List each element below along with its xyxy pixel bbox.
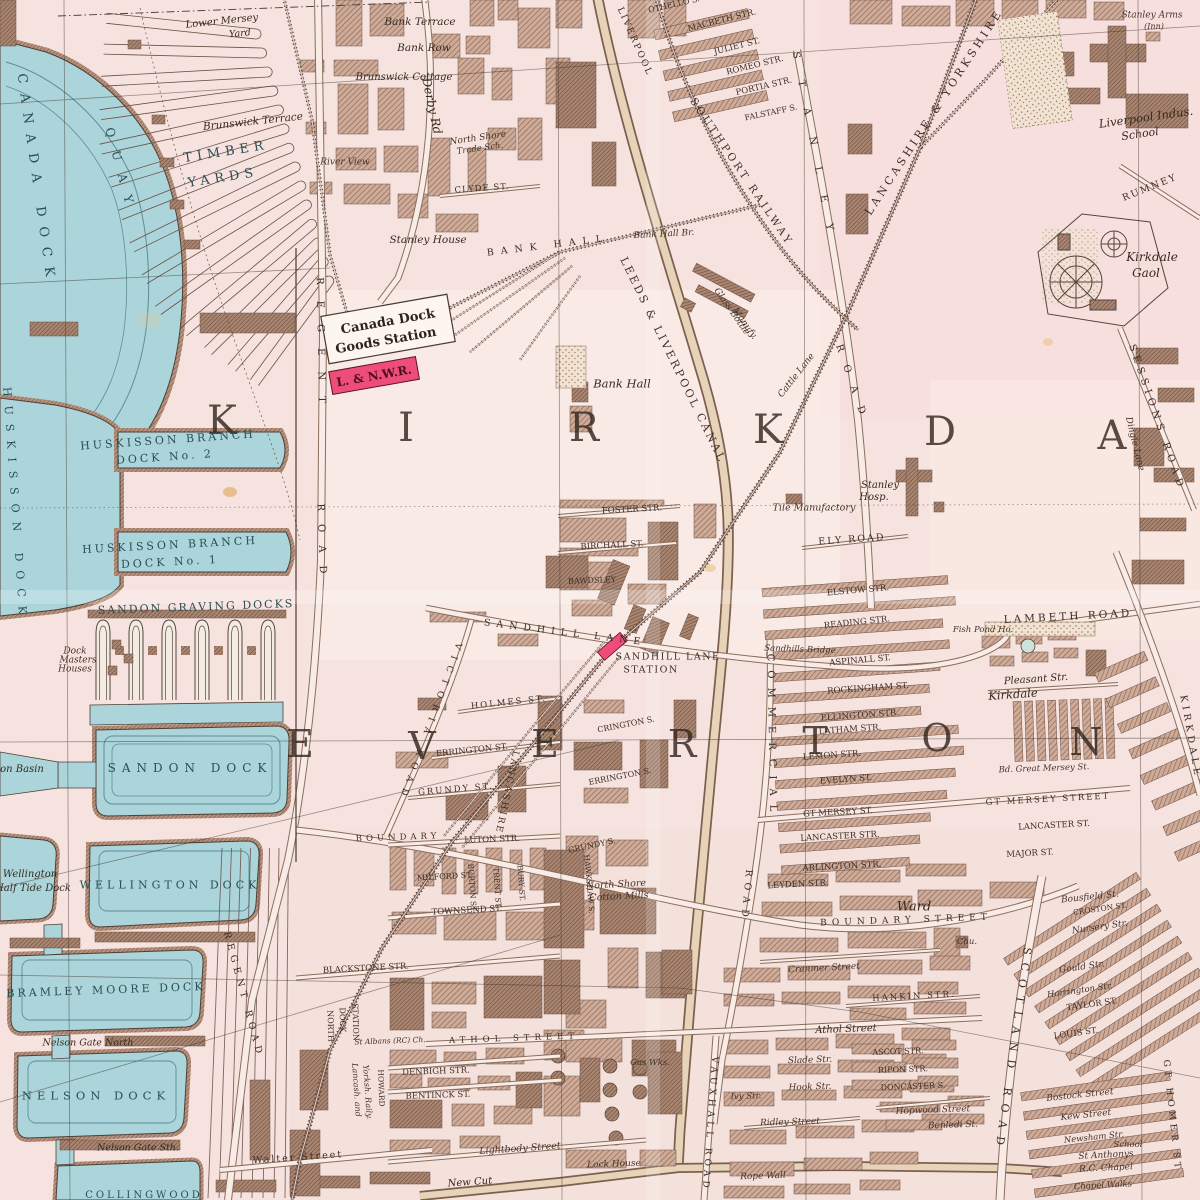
map-label: LANCASHIRE & YORKSHIRE bbox=[863, 7, 1005, 217]
map-label: O bbox=[921, 719, 952, 757]
map-label: Wellington bbox=[3, 870, 57, 880]
map-label: OTHELLO S. bbox=[648, 0, 701, 15]
map-label: MILFORD ST. bbox=[417, 872, 473, 883]
map-label: Ivy Str. bbox=[730, 1092, 761, 1102]
map-label: LEEDS & LIVERPOOL CANAL bbox=[618, 255, 728, 464]
map-label: TAYLOR ST. bbox=[1066, 997, 1118, 1013]
map-label: ERRINGTON S. bbox=[588, 767, 652, 787]
map-label: K bbox=[753, 410, 783, 450]
map-label: Bd. Great Mersey St. bbox=[998, 763, 1089, 775]
map-label: VICTORIA ROAD bbox=[396, 641, 462, 803]
map-label: SANDON GRAVING DOCKS bbox=[98, 598, 295, 616]
map-label: DOCK bbox=[338, 1007, 347, 1032]
map-label: BENTINCK ST. bbox=[405, 1091, 470, 1102]
map-label: BLACKSTONE STR. bbox=[323, 962, 410, 975]
map-label: E bbox=[286, 725, 314, 763]
map-label: LIVERPOOL bbox=[615, 6, 653, 77]
map-label: COMMERCIAL bbox=[765, 654, 778, 821]
map-label: Hopwood Street bbox=[896, 1105, 971, 1117]
map-label: GT MERSEY STREET bbox=[985, 792, 1110, 807]
map-labels-layer: Lower MerseyYardBank TerraceBank RowBrun… bbox=[0, 0, 1200, 1200]
map-label: Stanley bbox=[861, 481, 899, 491]
map-label: Cattle Lane bbox=[777, 352, 817, 399]
map-label: ROAD bbox=[739, 869, 753, 923]
map-label: BAWDSLEY bbox=[568, 576, 616, 586]
map-label: ELSTOW STR. bbox=[827, 584, 890, 598]
map-label: ELLINGTON STR. bbox=[821, 709, 900, 723]
map-label: Yard bbox=[229, 28, 252, 40]
map-label: Nelson Gate Sth. bbox=[97, 1143, 179, 1153]
map-label: ROCKINGHAM ST. bbox=[827, 682, 909, 696]
map-label: MAJOR ST. bbox=[1006, 849, 1054, 860]
map-label: SOUTHPORT RAILWAY bbox=[688, 96, 795, 247]
map-label: HUSKISSON BRANCH bbox=[80, 428, 256, 451]
map-label: Derby Rd bbox=[420, 77, 444, 136]
map-label: School bbox=[1113, 1141, 1142, 1150]
map-label: Nelson Gate North bbox=[43, 1038, 134, 1048]
map-label: HUSKISSON DOCK bbox=[1, 387, 28, 624]
map-label: Athol Street bbox=[815, 1024, 877, 1036]
map-label: DONCASTER S. bbox=[880, 1082, 945, 1092]
map-label: Bank Terrace bbox=[384, 17, 455, 28]
map-label: HUSKISSON BRANCH bbox=[82, 535, 258, 555]
map-label: St Albans (RC) Ch. bbox=[354, 1036, 425, 1046]
map-label: SANDHILL LANE bbox=[616, 652, 721, 662]
map-label: BIRCHALL ST. bbox=[580, 540, 643, 552]
map-label: Tile Manufactory bbox=[773, 503, 856, 513]
map-canvas: Lower MerseyYardBank TerraceBank RowBrun… bbox=[0, 0, 1200, 1200]
map-label: COLLINGWOOD bbox=[85, 1191, 203, 1200]
map-label: LAMBETH ROAD bbox=[1003, 608, 1132, 625]
map-label: N bbox=[1069, 723, 1102, 761]
map-label: LOUIS ST. bbox=[1053, 1027, 1098, 1042]
map-label: Brunswick Cottage bbox=[356, 73, 453, 83]
map-label: SANDON DOCK bbox=[108, 762, 273, 774]
map-label: River View bbox=[320, 159, 369, 168]
map-label: Chapel Walks bbox=[1074, 1180, 1133, 1192]
map-label: READING STR. bbox=[824, 615, 891, 630]
map-label: R.C. Chapel bbox=[1079, 1163, 1133, 1175]
map-label: STANLEY bbox=[790, 51, 839, 253]
map-label: Gould Str. bbox=[1059, 960, 1106, 975]
map-label: Lock House bbox=[587, 1160, 641, 1171]
map-label: REGENT ROAD bbox=[221, 931, 264, 1060]
map-label: Nursery Str. bbox=[1072, 920, 1129, 937]
map-label: Slade Str. bbox=[788, 1056, 833, 1067]
map-label: Yorksh. Raily. bbox=[361, 1065, 373, 1120]
map-label: Lightbody Street bbox=[479, 1141, 561, 1156]
map-label: T bbox=[802, 722, 827, 760]
map-label: HOWARD bbox=[377, 1069, 386, 1106]
map-label: Cranmer Street bbox=[788, 963, 860, 976]
map-label: ELY ROAD bbox=[818, 533, 886, 547]
map-label: QUAY bbox=[103, 126, 138, 218]
map-label: CLYDE ST. bbox=[454, 183, 509, 195]
map-label: PORTIA STR. bbox=[735, 76, 793, 97]
map-label: St Anthonys bbox=[1078, 1150, 1134, 1162]
map-label: BRAMLEY MOORE DOCK bbox=[6, 981, 206, 999]
map-label: I bbox=[398, 408, 414, 448]
map-label: RUMNEY bbox=[1121, 173, 1179, 204]
map-label: BOUNDARY bbox=[356, 832, 441, 843]
map-label: LATHAM STR. bbox=[819, 724, 882, 737]
map-label: Ward bbox=[897, 901, 932, 914]
map-label: Bank Hall Br. bbox=[633, 229, 694, 241]
map-label: School bbox=[1121, 126, 1160, 142]
map-label: CRINGTON S. bbox=[597, 716, 655, 735]
map-label: ERRINGTON ST. bbox=[436, 743, 509, 759]
map-label: NORTH bbox=[325, 1010, 334, 1042]
map-label: SCOTLAND ROAD bbox=[993, 946, 1033, 1153]
map-label: Kirkdale bbox=[988, 688, 1038, 703]
map-label: WELLINGTON DOCK bbox=[80, 880, 261, 891]
map-label: FALSTAFF S. bbox=[744, 104, 798, 123]
map-label: DOCK No. 2 bbox=[116, 448, 215, 466]
map-label: ASCOT STR. bbox=[872, 1047, 923, 1057]
map-label: VAUXHALL ROAD bbox=[700, 1056, 718, 1192]
map-label: Bostock Street bbox=[1046, 1088, 1114, 1104]
map-label: LANCASTER STR. bbox=[800, 831, 880, 844]
map-label: ATHOL STREET bbox=[449, 1032, 579, 1045]
map-label: CROSTON ST. bbox=[1073, 902, 1128, 917]
map-label: RIPON STR. bbox=[878, 1065, 928, 1075]
map-label: Cotton Mills bbox=[589, 891, 649, 904]
map-label: JULIET ST. bbox=[713, 37, 761, 57]
map-label: Benledi St. bbox=[928, 1121, 978, 1132]
map-label: Lancash. and bbox=[350, 1063, 362, 1117]
map-label: YARDS bbox=[187, 166, 259, 190]
map-label: Bank Row bbox=[397, 43, 451, 54]
map-label: BANK HALL bbox=[486, 234, 609, 258]
map-label: L. & N.W.R. bbox=[335, 363, 412, 388]
map-label: ASPINALL ST. bbox=[829, 654, 891, 668]
map-label: Ridley Street bbox=[760, 1117, 820, 1128]
map-label: ROAD bbox=[315, 503, 328, 586]
map-label: LEYDEN STR. bbox=[767, 879, 829, 891]
map-label: STATION bbox=[623, 665, 678, 675]
map-label: R bbox=[569, 408, 599, 448]
map-label: CANADA DOCK bbox=[15, 73, 58, 288]
map-label: Stanley House bbox=[389, 235, 466, 246]
map-label: BURY ST. bbox=[516, 865, 526, 901]
map-label: Bank Hall bbox=[593, 378, 651, 390]
map-label: Stanley Arms bbox=[1121, 12, 1182, 21]
map-label: STATION bbox=[350, 1003, 359, 1041]
map-label: Gas Wks. bbox=[630, 1059, 670, 1068]
map-label: E bbox=[531, 725, 559, 763]
map-label: Kew Street bbox=[1060, 1109, 1111, 1123]
map-label: FOSTER STR. bbox=[602, 504, 663, 516]
map-label: Kirkdale bbox=[1126, 251, 1178, 263]
map-label: D bbox=[924, 412, 956, 452]
map-label: Half Tide Dock bbox=[0, 884, 71, 894]
map-label: NELSON DOCK bbox=[22, 1090, 170, 1102]
map-label: MACBETH STR. bbox=[687, 8, 757, 33]
map-label: New Cut bbox=[447, 1176, 492, 1189]
map-label: LANCASTER ST. bbox=[1018, 820, 1090, 832]
map-label: GT MERSEY ST. bbox=[803, 807, 873, 819]
map-label: Fish Pond Ho. bbox=[953, 626, 1013, 635]
map-label: Houses bbox=[58, 666, 92, 675]
map-label: ROAD bbox=[833, 343, 871, 428]
map-label: on Basin bbox=[0, 765, 44, 775]
map-label: EVELYN ST. bbox=[820, 774, 873, 786]
map-label: TRENT ST. bbox=[492, 867, 502, 909]
map-label: LANCASHIRE bbox=[493, 750, 519, 835]
map-label: GT HOMER ST bbox=[1161, 1059, 1182, 1172]
map-label: HANKIN STR. bbox=[872, 991, 956, 1004]
map-label: (Inn) bbox=[1144, 23, 1164, 31]
map-label: Walter Street bbox=[252, 1150, 343, 1166]
map-label: Hosp. bbox=[859, 493, 888, 503]
map-label: LUTON STR. bbox=[464, 835, 520, 845]
map-label: Rope Wall bbox=[740, 1172, 786, 1183]
map-label: TOWNSEND ST. bbox=[431, 905, 502, 917]
map-label: SANDHILL LANE bbox=[483, 618, 646, 647]
map-label: BOUNDARY STREET bbox=[820, 914, 992, 929]
map-label: R bbox=[668, 725, 697, 763]
map-label: ARLINGTON STR. bbox=[802, 861, 881, 874]
map-label: Brunswick Terrace bbox=[203, 112, 304, 133]
map-label: GRUNDY S. bbox=[568, 837, 617, 855]
map-label: REGENT bbox=[314, 277, 326, 419]
map-label: Hook Str. bbox=[788, 1083, 831, 1093]
map-label: A bbox=[1098, 416, 1127, 456]
map-label: DENBIGH STR. bbox=[402, 1067, 470, 1078]
map-label: KIRKDALE bbox=[1178, 694, 1200, 779]
map-label: Chu. bbox=[957, 938, 977, 947]
map-label: TIMBER bbox=[183, 139, 270, 165]
map-label: ROMEO STR. bbox=[726, 55, 785, 77]
map-label: DOCK No. 1 bbox=[121, 554, 219, 570]
map-label: Gaol bbox=[1132, 267, 1160, 279]
map-label: HOLMES ST. bbox=[471, 695, 548, 711]
map-label: GRUNDY ST. bbox=[418, 782, 494, 797]
